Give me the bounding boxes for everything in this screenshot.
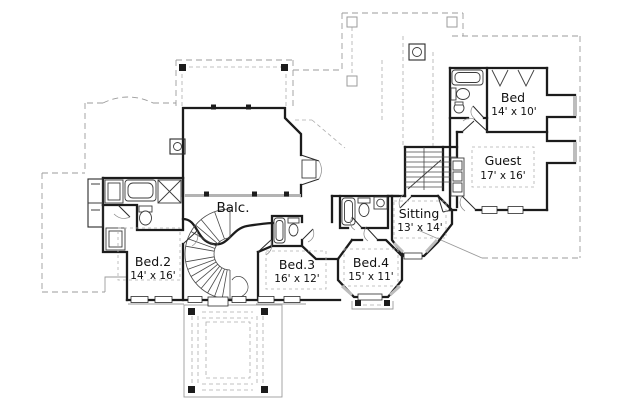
- column-post-icon: [246, 105, 251, 110]
- bed4-balcony: [352, 300, 393, 309]
- toilet-icon: [358, 198, 370, 217]
- spiral-stair-icon: [185, 209, 248, 299]
- toilet-icon: [451, 88, 470, 100]
- window-icon: [358, 294, 382, 300]
- door-swing-icon: [471, 106, 484, 119]
- sink-icon: [374, 197, 387, 209]
- railing-post-icon: [284, 192, 289, 197]
- bathtub-icon: [452, 70, 483, 85]
- balcony-railing: [179, 64, 301, 197]
- chimney-chase: [88, 179, 103, 227]
- column-post-icon: [281, 64, 288, 71]
- hanging-rod-icon: [492, 70, 534, 86]
- window-icon: [284, 297, 300, 303]
- column-post-icon: [179, 64, 186, 71]
- room-dims-sitting: 13' x 14': [397, 222, 442, 234]
- toilet-icon: [139, 206, 152, 225]
- room-label-sitting: Sitting: [399, 206, 440, 221]
- floor-plan-drawing: Balc. Bed.2 14' x 16' Bed.3 16' x 12' Be…: [0, 0, 620, 415]
- column-post-icon: [355, 300, 361, 306]
- window-icon: [258, 297, 274, 303]
- room-dims-bed2: 14' x 16': [130, 270, 175, 282]
- bathtub-icon: [342, 198, 355, 225]
- door-swing-icon: [462, 118, 488, 132]
- column-post-icon: [211, 105, 216, 110]
- window-icon: [573, 96, 577, 116]
- door-recess: [208, 297, 228, 306]
- room-label-bed: Bed: [501, 90, 525, 105]
- closet-shelves-icon: [451, 158, 464, 196]
- window-icon: [155, 297, 172, 303]
- door-swing-icon: [302, 229, 314, 242]
- room-label-guest: Guest: [485, 153, 522, 168]
- window-icon: [188, 297, 202, 303]
- bathtub-icon: [125, 180, 156, 201]
- sink-icon: [454, 102, 464, 113]
- door-swing-icon: [460, 196, 476, 211]
- lower-porch-outline: [184, 305, 282, 397]
- column-post-icon: [188, 386, 195, 393]
- chimney-icon: [409, 44, 425, 60]
- column-post-icon: [188, 308, 195, 315]
- room-dims-bed3: 16' x 12': [274, 273, 319, 285]
- room-label-bed2: Bed.2: [135, 254, 171, 269]
- room-label-bed4: Bed.4: [353, 255, 389, 270]
- room-label-bed3: Bed.3: [279, 257, 315, 272]
- railing-post-icon: [204, 192, 209, 197]
- window-icon: [508, 207, 523, 214]
- label-boxes: [118, 147, 534, 289]
- bathtub-icon: [274, 218, 285, 243]
- window-icon: [232, 297, 246, 303]
- room-dims-bed: 14' x 10': [491, 106, 536, 118]
- room-dims-guest: 17' x 16': [480, 170, 525, 182]
- closet-shelves-icon: [106, 228, 125, 250]
- shower-icon: [158, 180, 181, 203]
- floor-plan-canvas: Balc. Bed.2 14' x 16' Bed.3 16' x 12' Be…: [0, 0, 620, 415]
- toilet-icon: [288, 218, 299, 236]
- room-label-balc: Balc.: [217, 200, 250, 216]
- railing-post-icon: [252, 192, 257, 197]
- column-post-icon: [261, 386, 268, 393]
- window-icon: [482, 207, 497, 214]
- window-icon: [404, 253, 422, 259]
- door-swing-icon: [114, 205, 130, 218]
- window-icon: [573, 142, 577, 162]
- closet-shelves-icon: [302, 160, 316, 178]
- door-swing-icon: [183, 231, 198, 246]
- room-dims-bed4: 15' x 11': [348, 271, 393, 283]
- closet-shelves-icon: [105, 180, 123, 203]
- column-post-icon: [261, 308, 268, 315]
- window-icon: [131, 297, 148, 303]
- column-post-icon: [384, 300, 390, 306]
- bathroom-fixtures: [105, 70, 534, 250]
